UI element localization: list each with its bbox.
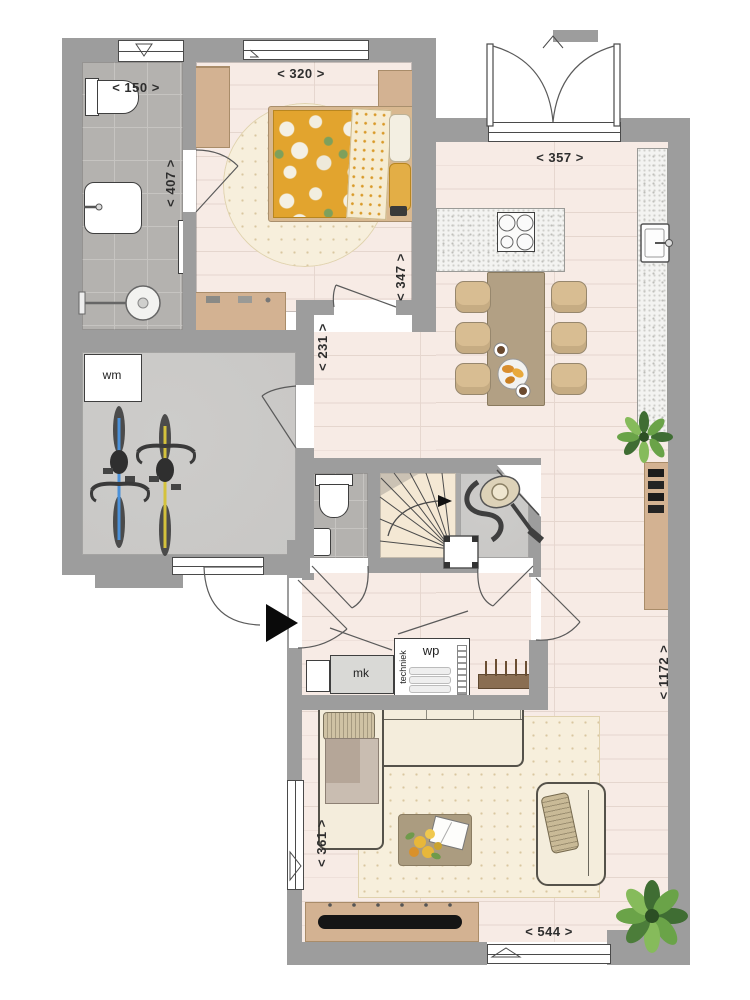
dining-chair xyxy=(455,281,491,313)
storage-door-opening xyxy=(296,385,314,448)
wall-segment xyxy=(62,330,310,352)
wall-segment xyxy=(95,575,183,588)
sofa-pillow xyxy=(323,712,375,740)
dresser xyxy=(194,292,286,332)
dimension-label-living-bottom-width: < 544 > xyxy=(519,924,579,938)
hall-cabinet-door xyxy=(306,660,330,692)
closet-floor xyxy=(460,473,529,558)
dimension-label-kitchen-width: < 357 > xyxy=(530,150,590,164)
closet-door-opening xyxy=(478,558,533,573)
washing-machine-label: wm xyxy=(84,368,140,382)
books-stack xyxy=(648,481,664,489)
heat-pump-vent-slat xyxy=(409,685,451,693)
dining-chair xyxy=(455,363,491,395)
dining-chair xyxy=(551,363,587,395)
bathroom-window xyxy=(118,40,184,62)
wall-segment xyxy=(456,473,460,558)
storage-door-sill xyxy=(172,557,264,575)
dining-table xyxy=(487,272,545,406)
wc-toilet-bowl xyxy=(319,484,349,518)
wall-segment xyxy=(607,930,690,965)
bedroom-door-opening xyxy=(334,300,396,315)
technical-room-label: techniek xyxy=(398,637,408,697)
wall-segment xyxy=(296,300,314,352)
coat-rack xyxy=(478,674,534,689)
coffee-table xyxy=(398,814,472,866)
wall-segment xyxy=(668,118,690,965)
kitchen-wall-counter xyxy=(637,148,668,440)
dimension-label-bedroom-width: < 320 > xyxy=(271,66,331,80)
dining-chair xyxy=(455,322,491,354)
cooktop xyxy=(497,212,535,252)
heat-pump-vent-strip xyxy=(457,645,467,695)
dimension-label-bedroom-depth: < 347 > xyxy=(393,247,407,307)
wardrobe xyxy=(194,66,230,148)
wall-segment xyxy=(62,38,82,575)
front-door-opening xyxy=(289,578,302,648)
books-stack xyxy=(648,493,664,501)
wall-segment xyxy=(296,458,541,473)
dimension-label-bathroom-depth: < 407 > xyxy=(163,153,177,213)
books-stack xyxy=(648,469,664,477)
french-doors-sill xyxy=(488,122,621,142)
bed-pillow xyxy=(389,114,411,162)
nightstand xyxy=(378,70,413,109)
heat-pump-vent-slat xyxy=(409,676,451,684)
bed-duvet-folded xyxy=(346,108,392,220)
tv xyxy=(318,915,462,929)
stair-floor xyxy=(380,473,456,558)
wall-segment xyxy=(412,118,490,142)
sofa-blanket xyxy=(325,738,379,804)
bedroom-window xyxy=(243,40,369,60)
dimension-label-hall-depth: < 231 > xyxy=(315,317,329,377)
wall-segment xyxy=(287,695,548,710)
books-stack xyxy=(648,505,664,513)
floor-plan: < 150 > < 320 > < 357 > < 544 > < 407 > … xyxy=(0,0,750,1000)
dimension-label-living-depth: < 1172 > xyxy=(656,642,670,702)
bottom-window xyxy=(487,944,611,964)
living-room-window xyxy=(287,780,304,890)
bedside-tray xyxy=(390,206,407,216)
heat-pump-vent-slat xyxy=(409,667,451,675)
meter-cupboard-label: mk xyxy=(330,666,392,680)
bathroom-door-opening xyxy=(183,150,196,212)
wall-segment xyxy=(553,30,598,42)
bed-pillow xyxy=(389,163,411,211)
hall-door-opening xyxy=(531,577,541,640)
sideboard xyxy=(644,462,670,610)
armchair-back xyxy=(588,790,604,876)
wall-segment xyxy=(412,38,436,332)
wall-segment xyxy=(287,942,487,965)
wall-segment xyxy=(529,640,548,698)
wall-segment xyxy=(368,473,380,558)
dining-chair xyxy=(551,281,587,313)
wc-door-opening xyxy=(310,558,368,573)
dining-chair xyxy=(551,322,587,354)
heat-pump-label: wp xyxy=(408,643,454,658)
dimension-label-bathroom-width: < 150 > xyxy=(106,80,166,94)
dimension-label-living-width: < 361 > xyxy=(314,813,328,873)
bed-duvet-floral xyxy=(273,110,353,218)
washbasin xyxy=(84,182,142,234)
